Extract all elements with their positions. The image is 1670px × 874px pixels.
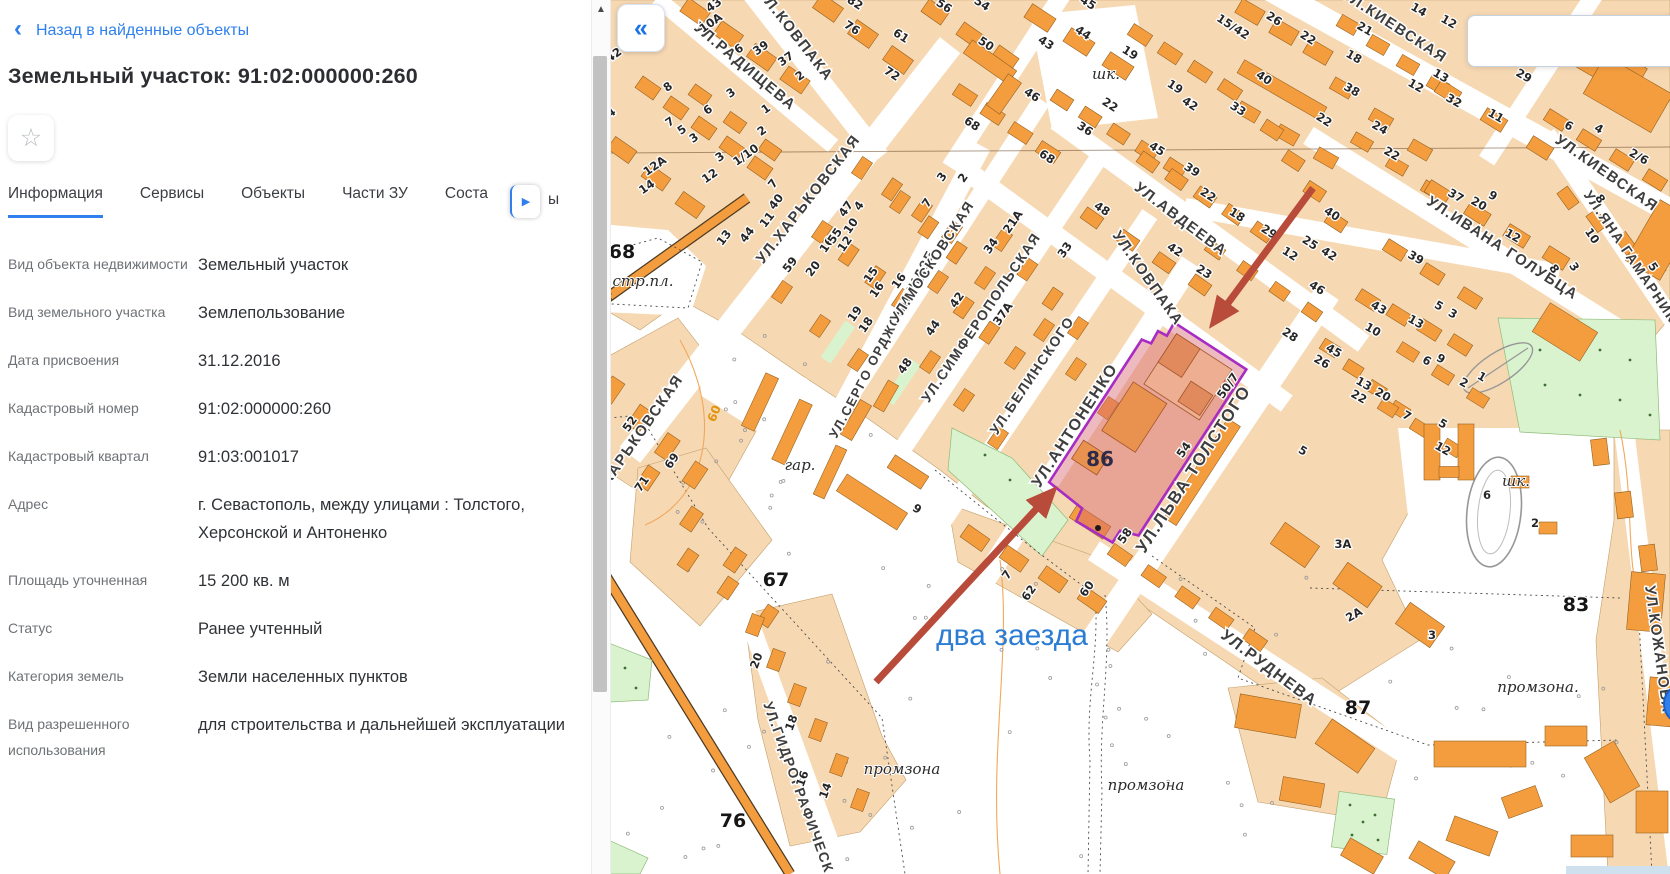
scroll-up-icon[interactable]: ▲ bbox=[592, 4, 610, 15]
field-row: Вид объекта недвижимостиЗемельный участо… bbox=[8, 251, 573, 279]
place-label: стр.пл. bbox=[613, 272, 674, 290]
field-value: Ранее учтенный bbox=[198, 615, 573, 643]
details-panel: ‹ Назад в найденные объекты Земельный уч… bbox=[0, 0, 591, 874]
place-label: промзона bbox=[1108, 776, 1185, 794]
scrollbar-thumb[interactable] bbox=[593, 56, 607, 692]
map-pane: УЛ.РАДИЩЕВАУЛ.КОВПАКАУЛ.ХАРЬКОВСКАЯУЛ.ХА… bbox=[609, 0, 1670, 874]
quarter-number: 67 bbox=[763, 569, 789, 591]
tab-4[interactable]: Соста bbox=[445, 185, 488, 215]
field-row: Адресг. Севастополь, между улицами : Тол… bbox=[8, 491, 573, 547]
parcel-number: 86 bbox=[1086, 447, 1114, 471]
place-label: шк. bbox=[1092, 65, 1120, 83]
field-value: г. Севастополь, между улицами : Толстого… bbox=[198, 491, 573, 547]
field-row: Вид земельного участкаЗемлепользование bbox=[8, 299, 573, 327]
favorite-button[interactable]: ☆ bbox=[8, 115, 54, 161]
svg-text:3: 3 bbox=[1428, 628, 1436, 642]
field-label: Адрес bbox=[8, 491, 198, 547]
field-label: Вид земельного участка bbox=[8, 299, 198, 327]
back-link-label: Назад в найденные объекты bbox=[36, 22, 249, 40]
field-row: СтатусРанее учтенный bbox=[8, 615, 573, 643]
attributes-list: Вид объекта недвижимостиЗемельный участо… bbox=[0, 221, 591, 763]
map-attribution bbox=[1566, 866, 1670, 874]
tabs-bar: ИнформацияСервисыОбъектыЧасти ЗУСоста ▶ … bbox=[0, 185, 591, 221]
cadastral-app: ‹ Назад в найденные объекты Земельный уч… bbox=[0, 0, 1670, 874]
place-label: промзона. bbox=[1497, 678, 1579, 696]
field-value: 91:03:001017 bbox=[198, 443, 573, 471]
quarter-number: 83 bbox=[1563, 594, 1589, 616]
collapse-panel-button[interactable]: « bbox=[617, 4, 665, 52]
field-row: Кадастровый квартал91:03:001017 bbox=[8, 443, 573, 471]
field-label: Статус bbox=[8, 615, 198, 643]
field-label: Кадастровый квартал bbox=[8, 443, 198, 471]
tab-2[interactable]: Объекты bbox=[241, 185, 305, 215]
quarter-number: 76 bbox=[720, 810, 746, 832]
place-label: шк. bbox=[1502, 472, 1530, 490]
page-title: Земельный участок: 91:02:000000:260 bbox=[8, 64, 591, 89]
field-label: Вид объекта недвижимости bbox=[8, 251, 198, 279]
cadastral-map[interactable]: УЛ.РАДИЩЕВАУЛ.КОВПАКАУЛ.ХАРЬКОВСКАЯУЛ.ХА… bbox=[609, 0, 1670, 874]
field-row: Дата присвоения31.12.2016 bbox=[8, 347, 573, 375]
field-label: Площадь уточненная bbox=[8, 567, 198, 595]
svg-text:2: 2 bbox=[1531, 516, 1539, 530]
svg-text:6: 6 bbox=[1483, 488, 1491, 502]
svg-text:3А: 3А bbox=[1335, 537, 1352, 551]
tab-0[interactable]: Информация bbox=[8, 185, 103, 218]
place-label: гар. bbox=[785, 456, 816, 474]
field-label: Категория земель bbox=[8, 663, 198, 691]
map-popup bbox=[1467, 15, 1670, 67]
field-row: Кадастровый номер91:02:000000:260 bbox=[8, 395, 573, 423]
field-value: Земельный участок bbox=[198, 251, 573, 279]
tab-3[interactable]: Части ЗУ bbox=[342, 185, 408, 215]
tab-1[interactable]: Сервисы bbox=[140, 185, 204, 215]
chevron-right-icon: ▶ bbox=[522, 196, 530, 208]
back-chevron-icon: ‹ bbox=[14, 21, 22, 37]
field-value: 91:02:000000:260 bbox=[198, 395, 573, 423]
field-row: Площадь уточненная15 200 кв. м bbox=[8, 567, 573, 595]
star-icon: ☆ bbox=[20, 124, 42, 152]
field-value: 15 200 кв. м bbox=[198, 567, 573, 595]
field-label: Вид разрешенного использования bbox=[8, 711, 198, 763]
tab-label-fragment: ы bbox=[548, 191, 559, 209]
place-label: промзона bbox=[864, 760, 941, 778]
field-label: Дата присвоения bbox=[8, 347, 198, 375]
field-label: Кадастровый номер bbox=[8, 395, 198, 423]
field-value: 31.12.2016 bbox=[198, 347, 573, 375]
tabs-scroll-right-button[interactable]: ▶ bbox=[510, 185, 540, 218]
field-value: для строительства и дальнейшей эксплуата… bbox=[198, 711, 573, 763]
field-row: Категория земельЗемли населенных пунктов bbox=[8, 663, 573, 691]
field-row: Вид разрешенного использованиядля строит… bbox=[8, 711, 573, 763]
field-value: Земли населенных пунктов bbox=[198, 663, 573, 691]
quarter-number: 87 bbox=[1345, 697, 1371, 719]
sidebar-scrollbar[interactable]: ▲ bbox=[591, 0, 611, 874]
map-annotation-text: два заезда bbox=[936, 619, 1088, 652]
field-value: Землепользование bbox=[198, 299, 573, 327]
quarter-number: 68 bbox=[609, 241, 635, 263]
back-link[interactable]: ‹ Назад в найденные объекты bbox=[0, 0, 591, 40]
